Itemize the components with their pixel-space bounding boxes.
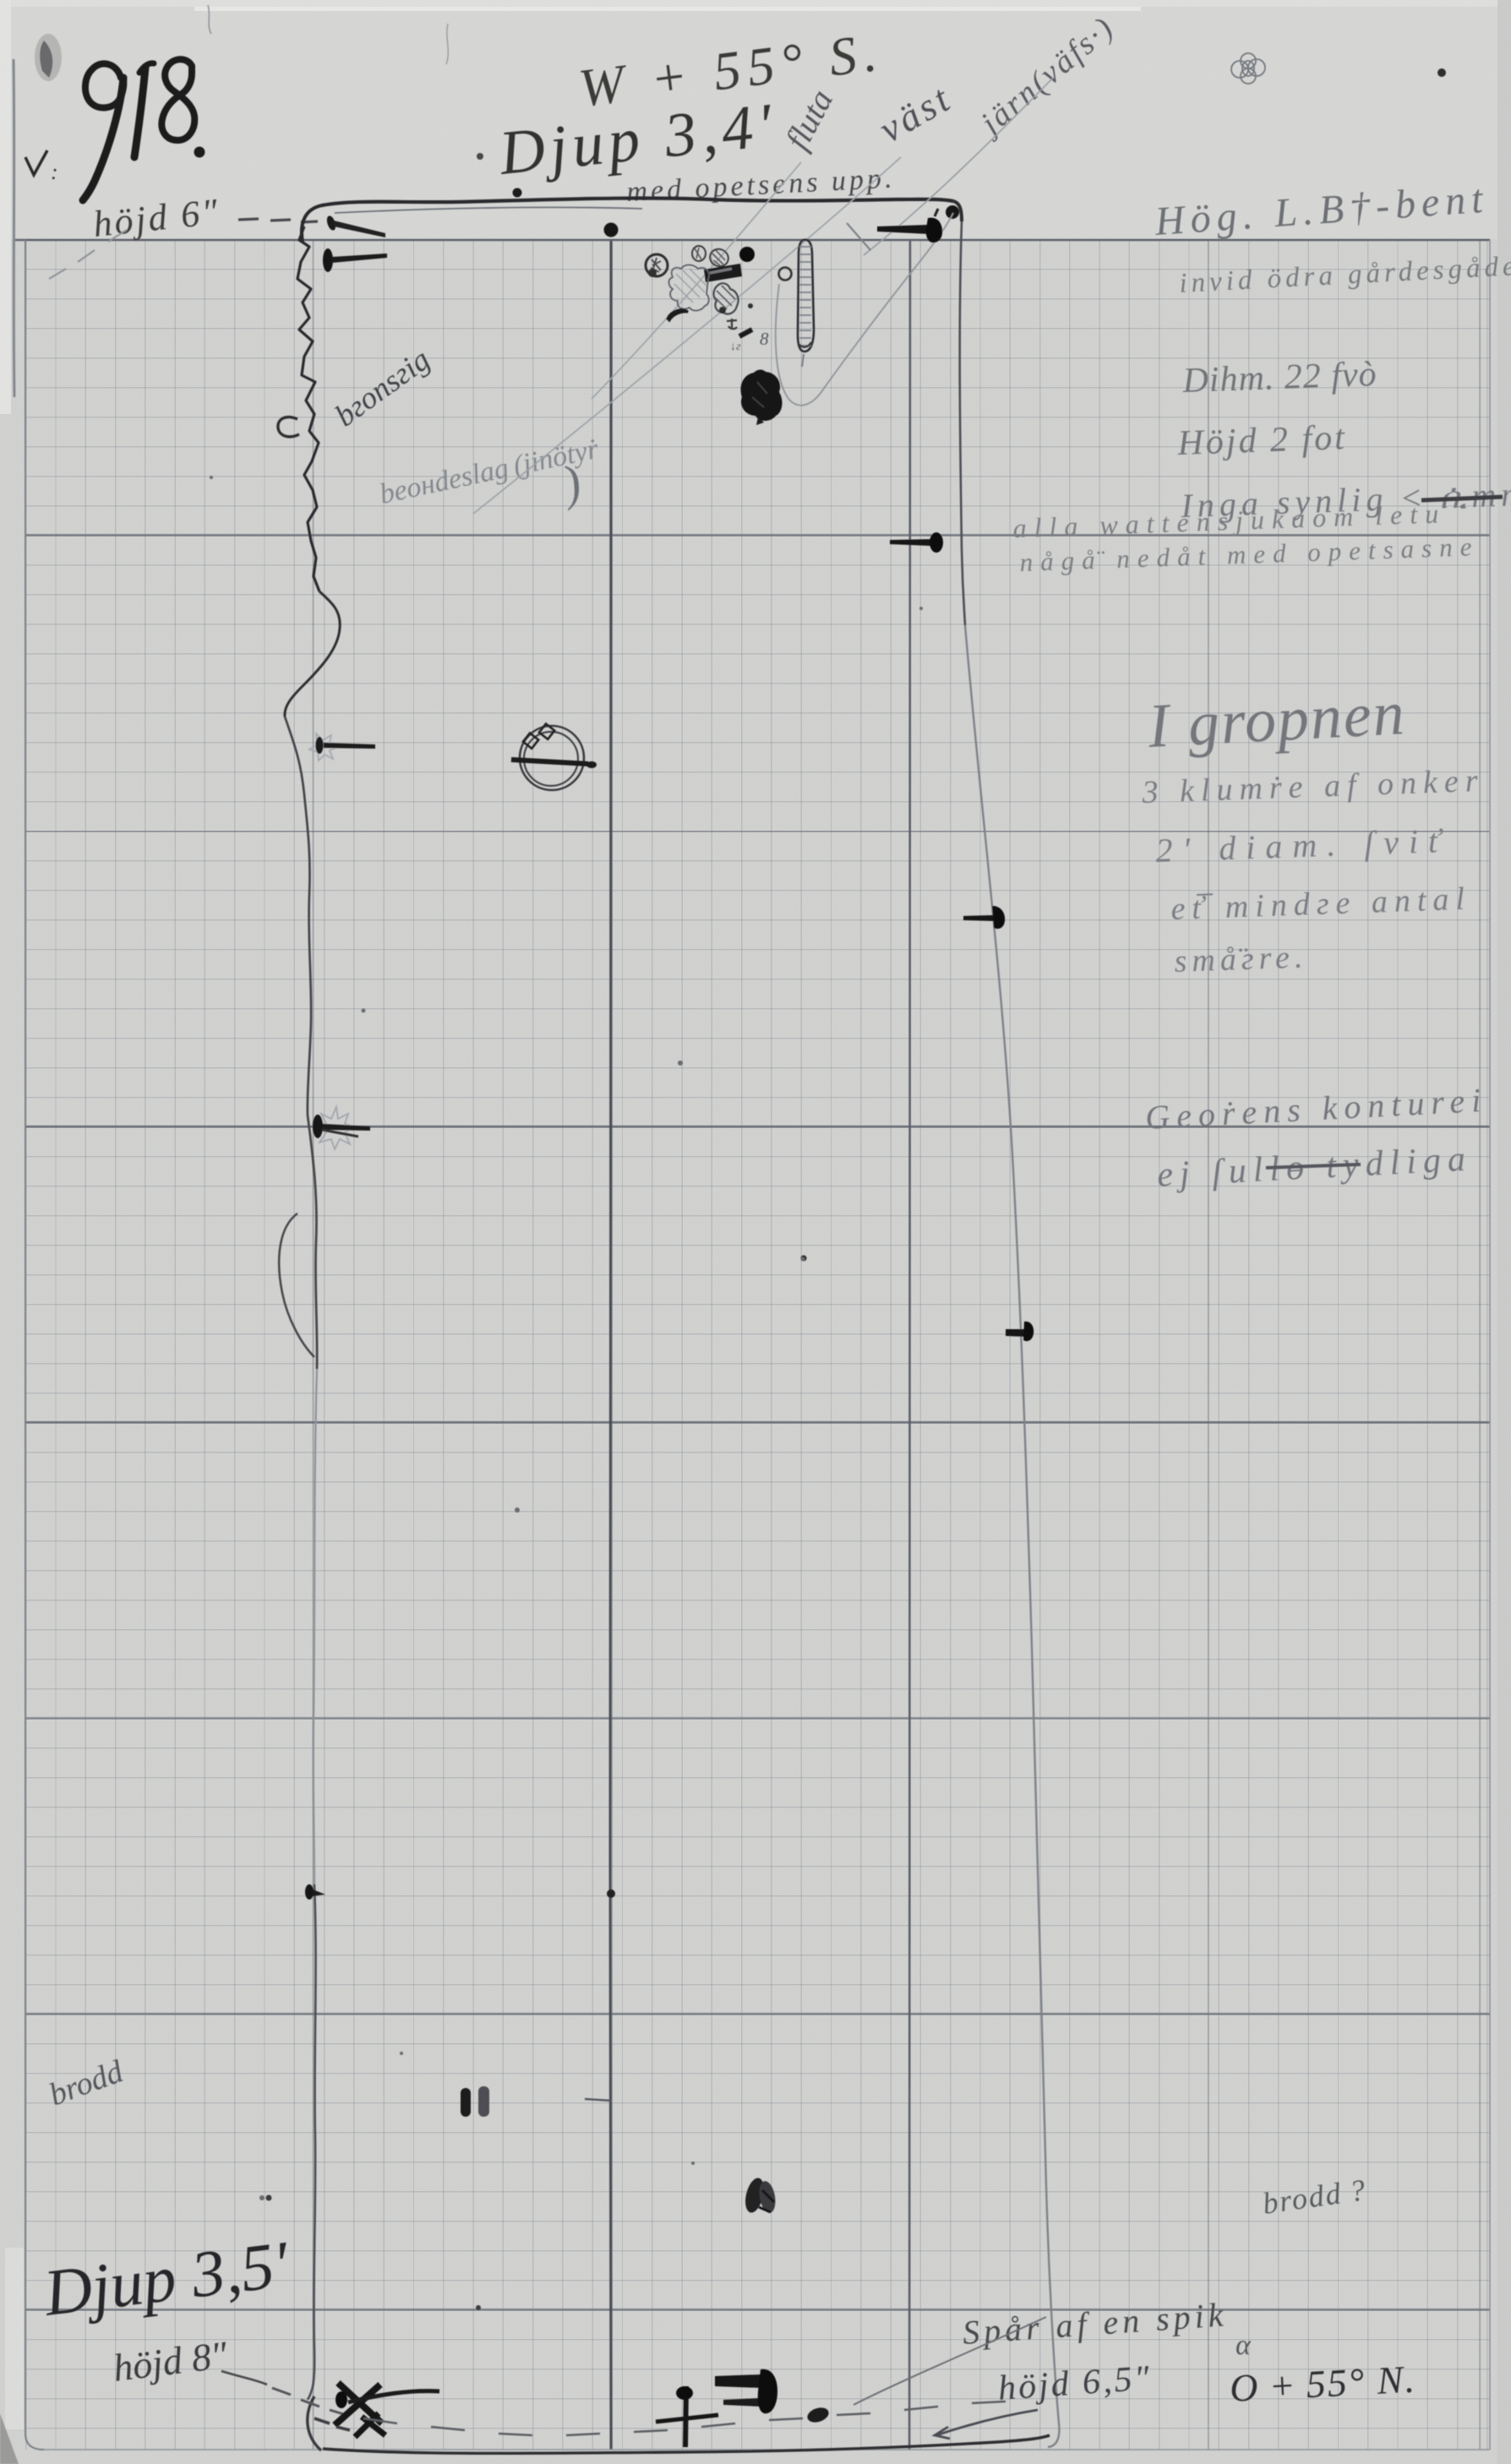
svg-text:8: 8 bbox=[760, 329, 769, 349]
svg-text:Dihm. 22 fvò: Dihm. 22 fvò bbox=[1181, 355, 1378, 401]
svg-text:α: α bbox=[1236, 2330, 1252, 2361]
svg-text:Höjd 2 fot: Höjd 2 fot bbox=[1176, 418, 1348, 463]
svg-text:I gropnen: I gropnen bbox=[1146, 679, 1408, 761]
svg-text:↓г: ↓г bbox=[730, 341, 741, 353]
svg-text::: : bbox=[51, 160, 58, 184]
svg-text:små̈гre.: små̈гre. bbox=[1174, 940, 1308, 979]
